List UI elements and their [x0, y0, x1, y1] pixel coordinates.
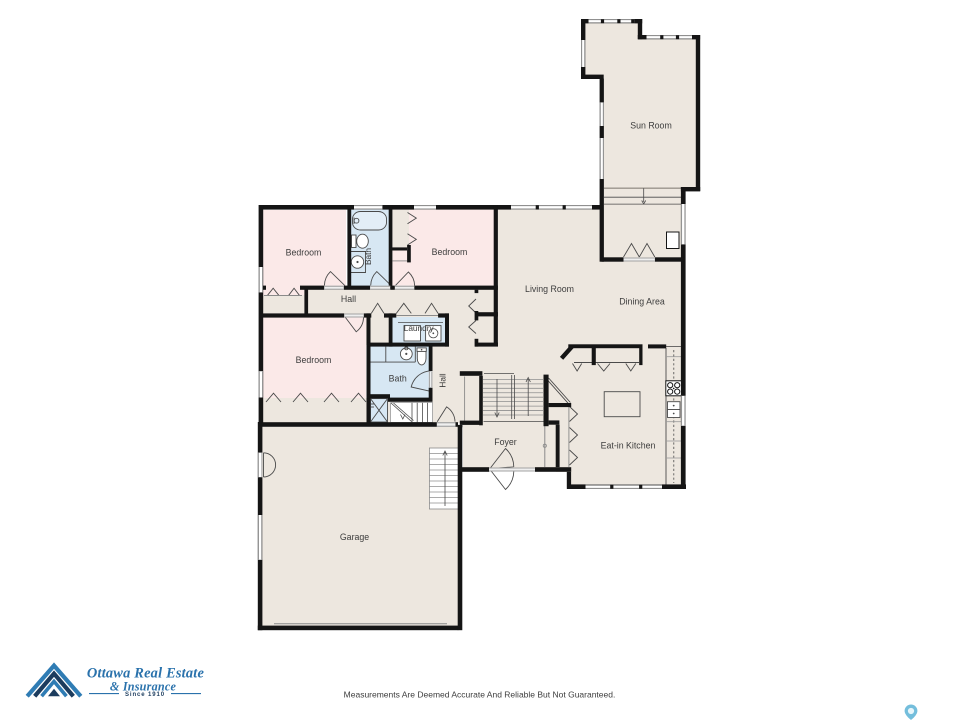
- svg-text:Dining Area: Dining Area: [619, 297, 665, 307]
- svg-text:Bath: Bath: [363, 248, 373, 265]
- svg-text:Garage: Garage: [340, 532, 369, 542]
- svg-text:Eat-in Kitchen: Eat-in Kitchen: [601, 441, 656, 451]
- svg-text:Hall: Hall: [341, 294, 356, 304]
- svg-text:Measurements Are Deemed Accura: Measurements Are Deemed Accurate And Rel…: [344, 690, 616, 700]
- svg-text:Living Room: Living Room: [525, 284, 574, 294]
- svg-text:Laundry: Laundry: [404, 323, 435, 333]
- svg-text:Hall: Hall: [438, 373, 448, 387]
- svg-text:Bath: Bath: [389, 374, 407, 384]
- svg-text:Since 1910: Since 1910: [125, 692, 165, 698]
- svg-text:Foyer: Foyer: [494, 437, 517, 447]
- svg-text:Bedroom: Bedroom: [296, 355, 332, 365]
- svg-text:Sun Room: Sun Room: [630, 121, 672, 131]
- svg-text:Bedroom: Bedroom: [432, 247, 468, 257]
- svg-text:Bedroom: Bedroom: [286, 248, 322, 258]
